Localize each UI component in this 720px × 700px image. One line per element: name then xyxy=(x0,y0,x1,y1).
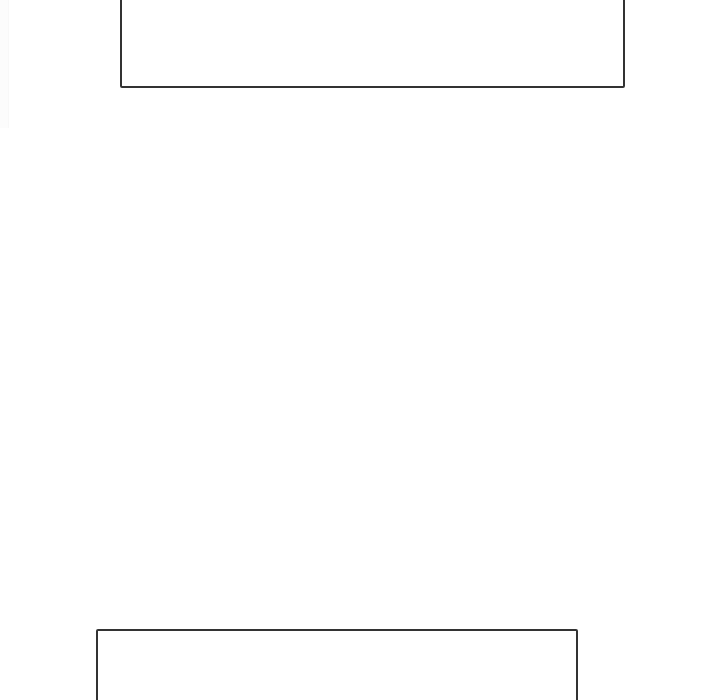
bottom-outlined-box[interactable] xyxy=(96,629,578,700)
blank-page xyxy=(0,0,720,700)
top-outlined-box[interactable] xyxy=(120,0,625,88)
left-edge-artifact xyxy=(0,0,9,128)
